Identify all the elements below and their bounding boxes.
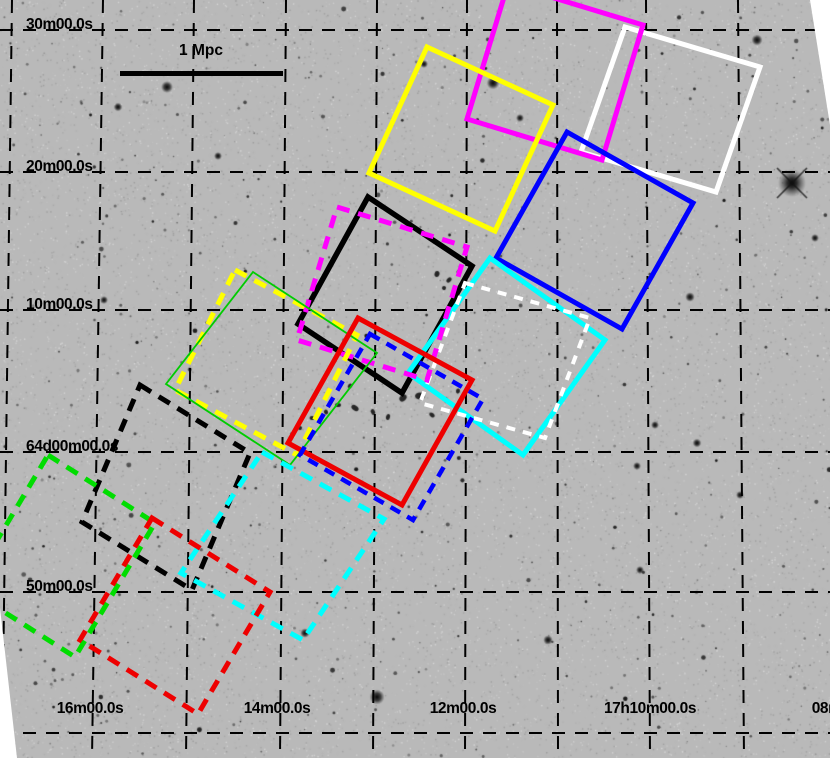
ra-grid-line [92, 0, 103, 758]
pointing-footprint-white-dashed [420, 283, 590, 438]
top-right-wedge [810, 0, 830, 125]
ra-axis-label: 08m00.0s [812, 701, 830, 717]
ra-axis-label: 14m00.0s [244, 701, 311, 717]
bottom-left-wedge [0, 608, 17, 758]
ra-grid-line [280, 0, 286, 758]
dec-axis-label: 50m00.0s [26, 579, 93, 595]
dec-axis-label: 10m00.0s [26, 297, 93, 313]
pointing-footprint-green-solid [166, 272, 377, 465]
scale-bar-label: 1 Mpc [179, 42, 223, 60]
scale-bar [120, 71, 283, 76]
pointing-footprint-red-dashed [80, 518, 270, 714]
dec-axis-label: 64d00m00.0s [26, 439, 118, 455]
dec-axis-label: 20m00.0s [26, 159, 93, 175]
ra-grid-line [557, 0, 558, 758]
graticule-and-footprints-overlay [0, 0, 830, 758]
pointing-footprint-magenta-dashed [297, 207, 467, 380]
sky-map-figure: 1 Mpc 30m00.0s20m00.0s10m00.0s64d00m00.0… [0, 0, 830, 758]
pointing-footprint-white-solid [581, 27, 760, 192]
ra-axis-label: 16m00.0s [57, 701, 124, 717]
ra-grid-line [646, 0, 650, 758]
dec-axis-label: 30m00.0s [26, 17, 93, 33]
pointing-footprint-yellow-dashed [175, 270, 357, 455]
ra-grid-line [186, 0, 194, 758]
pointing-footprint-blue-dashed [300, 334, 483, 520]
ra-axis-label: 17h10m00.0s [604, 701, 696, 717]
ra-axis-label: 12m00.0s [430, 701, 497, 717]
